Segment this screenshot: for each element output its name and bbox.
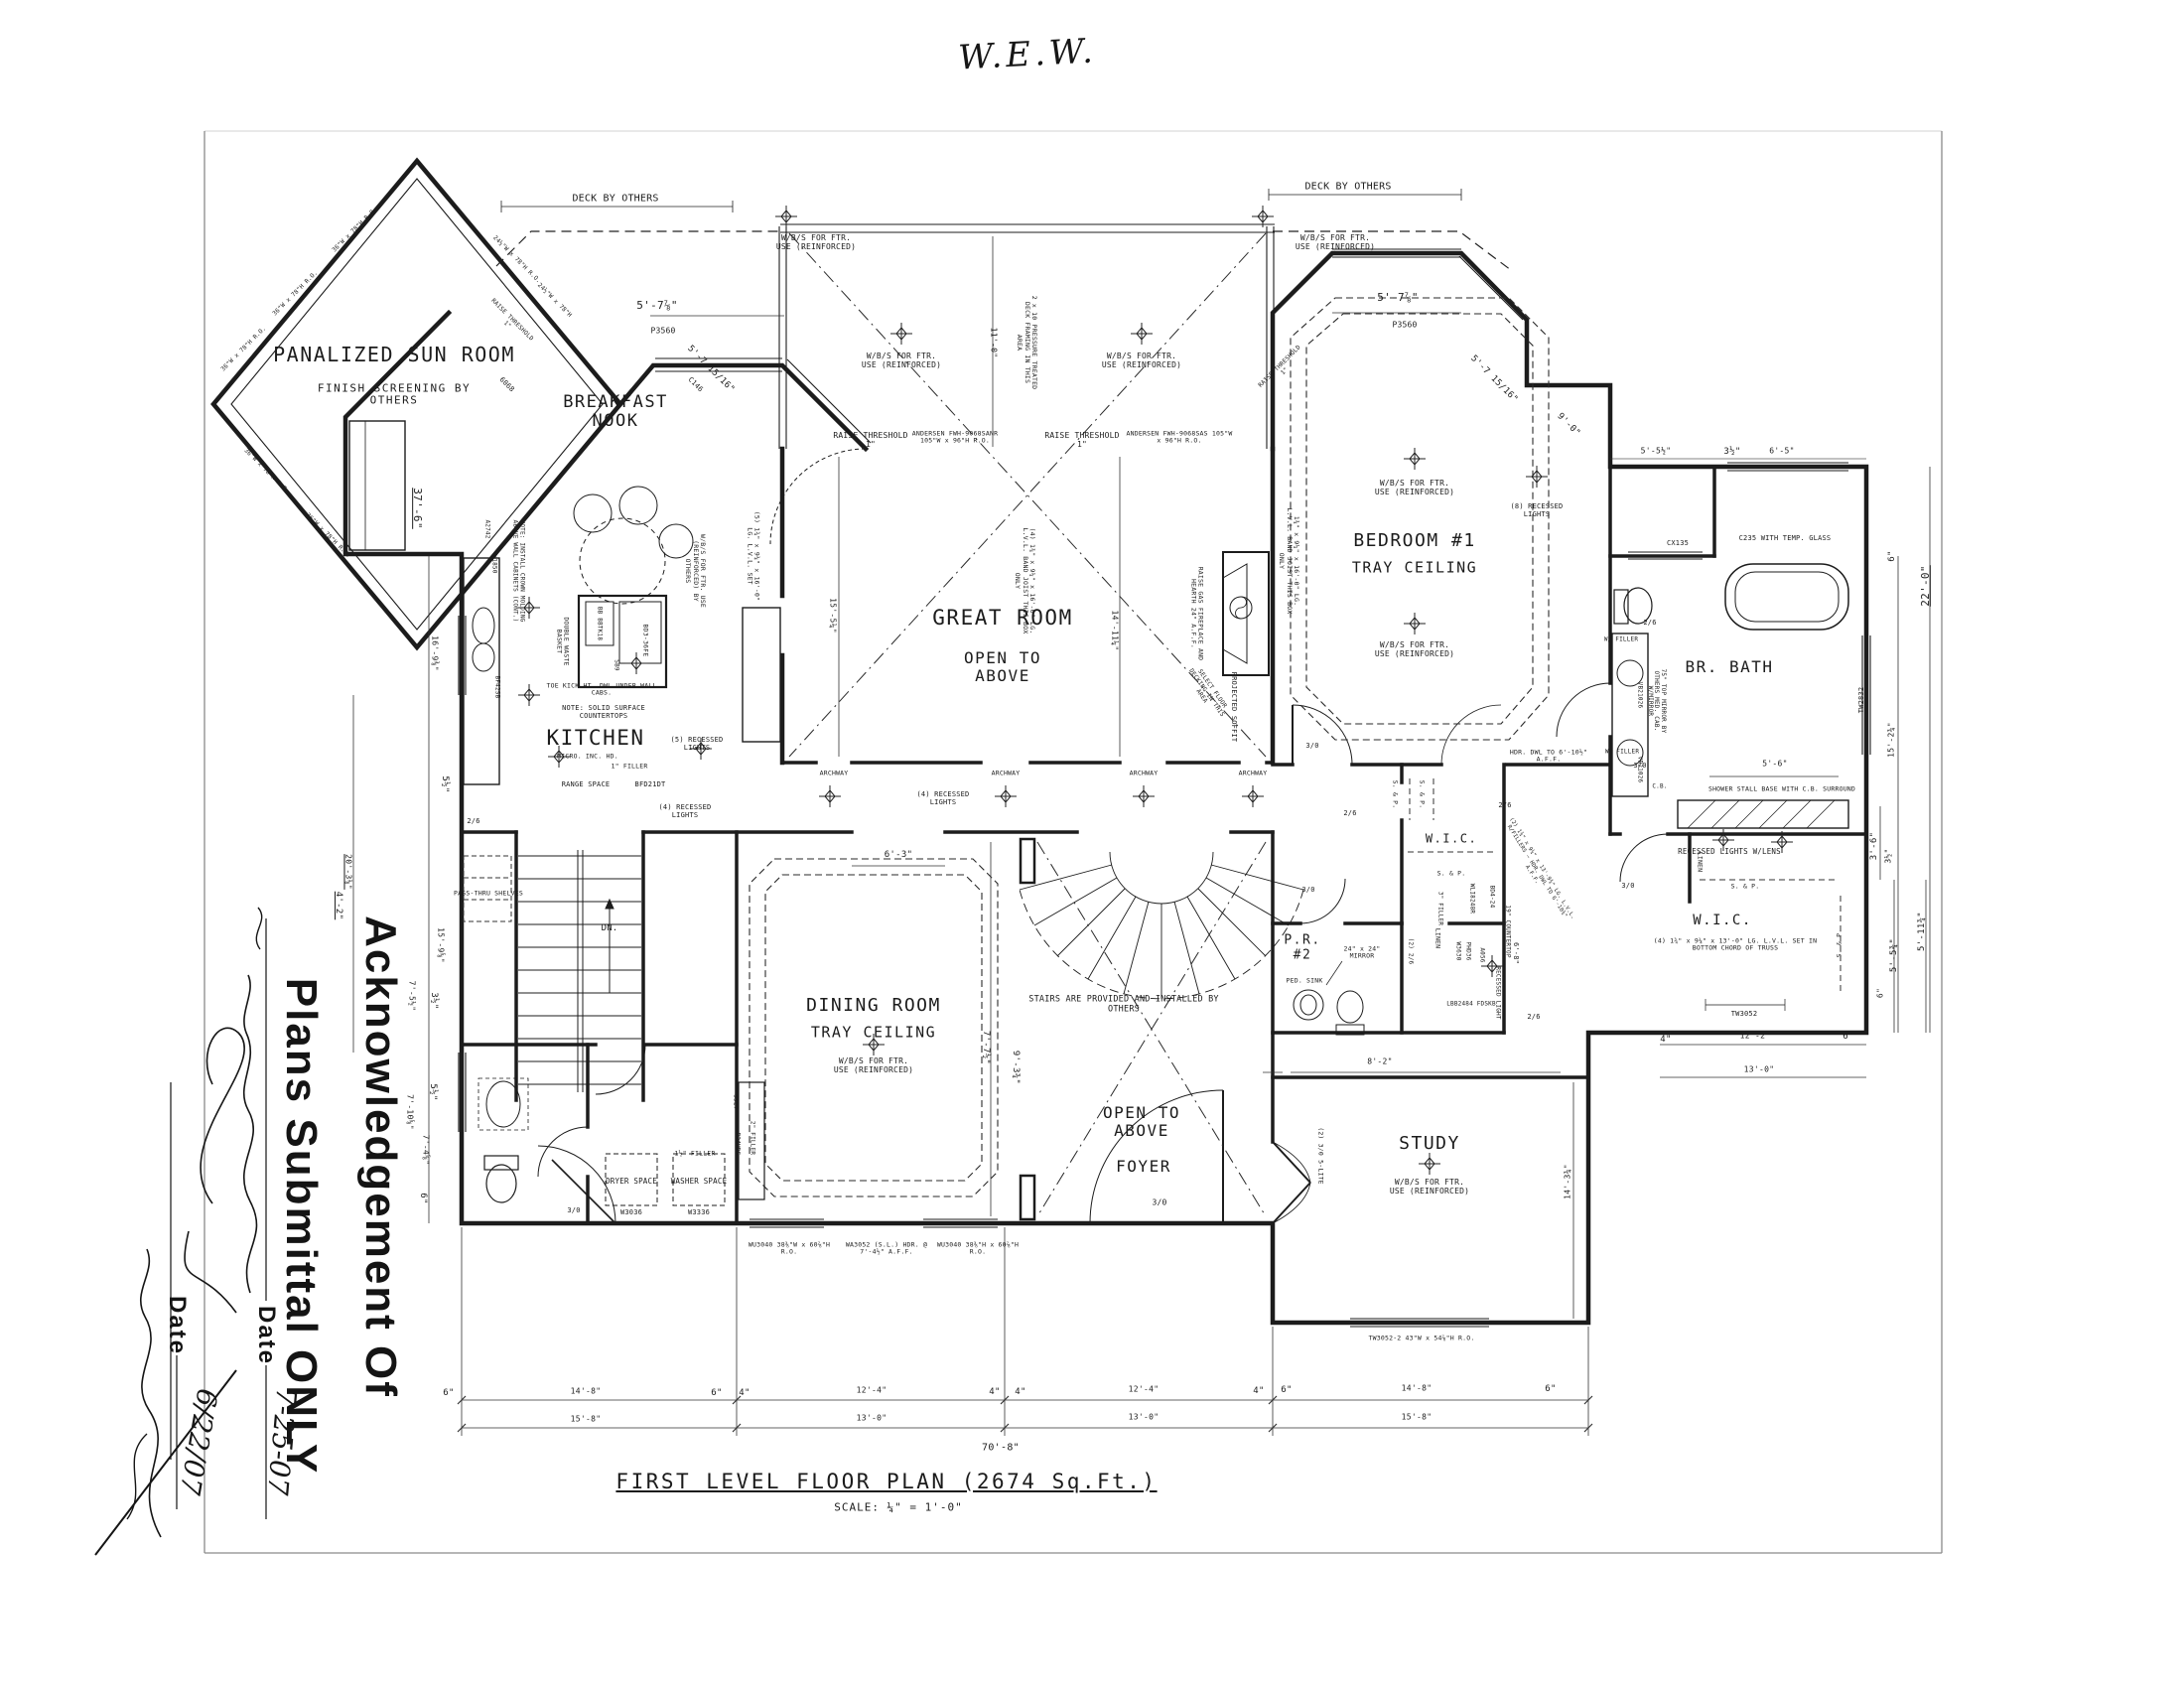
- room-great-room: GREAT ROOM: [932, 607, 1072, 631]
- annotation-label: 36"W x 78"H R.O.: [272, 270, 320, 318]
- dimension-label: 15'-8": [1402, 1414, 1433, 1423]
- annotation-label: 36"W x 78"H R.O.: [304, 512, 351, 560]
- annotation-label: 3/0: [1621, 883, 1634, 891]
- annotation-label: 2" FILLER: [749, 1121, 755, 1155]
- annotation-label: WU3040 38⅜"H x 60⅞"H R.O.: [931, 1242, 1025, 1257]
- annotation-label: BB BBTK18: [596, 607, 603, 640]
- room-bedroom-1: BEDROOM #1: [1353, 531, 1475, 551]
- annotation-label: 6'-8": [1511, 942, 1519, 964]
- annotation-label: MICRO. INC. HD.: [557, 753, 618, 760]
- annotation-label: C.B.: [1652, 784, 1667, 791]
- dimension-label: 4": [989, 1387, 1000, 1397]
- annotation-label: W/B/S FOR FTR. USE (REINFORCED): [1294, 234, 1378, 252]
- annotation-label: ANDERSEN FWH-9068SANR 105"W x 96"H R.O.: [900, 431, 1010, 446]
- note-stairs: STAIRS ARE PROVIDED AND INSTALLED BY OTH…: [1024, 995, 1223, 1014]
- dimension-label: 13'-0": [1744, 1066, 1775, 1075]
- annotation-label: HDR. DWL TO 6'-10½" A.F.F.: [1497, 750, 1601, 765]
- stamp-line-1: Acknowledgement Of: [355, 915, 405, 1398]
- annotation-label: TW3052-2 43"W x 54⅞"H R.O.: [1352, 1335, 1491, 1341]
- dimension-label: 12'-4": [857, 1387, 887, 1396]
- annotation-label: LINEN: [1433, 928, 1440, 949]
- annotation-label: RANGE SPACE: [560, 781, 612, 789]
- dimension-label: 5'-11¾": [1917, 912, 1927, 951]
- room-powder-2: P.R. #2: [1277, 933, 1328, 962]
- dimension-label: 7'-5½": [407, 981, 416, 1012]
- room-dining: DINING ROOM: [806, 996, 941, 1016]
- room-wic-master: W.I.C.: [1693, 914, 1752, 929]
- dimension-label: 22'-0": [1920, 565, 1932, 607]
- annotation-label: WASHER SPACE: [669, 1178, 729, 1186]
- annotation-label: 24½"W x 78"H R.O.: [491, 235, 542, 286]
- dimension-label: 12'-4": [1129, 1386, 1160, 1395]
- annotation-label: BF42SB: [493, 676, 500, 699]
- annotation-label: W3630: [1454, 941, 1461, 960]
- annotation-label: W/B/S FOR FTR. USE (REINFORCED): [1373, 480, 1457, 497]
- annotation-label: P3560: [650, 328, 675, 337]
- annotation-label: RECESSED LIGHTS W/LENS: [1673, 848, 1787, 856]
- dimension-label: 6": [1887, 550, 1897, 561]
- note-sun-room-screening: FINISH SCREENING BY OTHERS: [315, 383, 474, 408]
- annotation-label: 1½" FILLER: [674, 1150, 715, 1157]
- dimension-label: 5'-7 15/16": [1468, 353, 1520, 405]
- annotation-label: 2/6: [1527, 1014, 1540, 1022]
- dimension-label: 13'-0": [857, 1415, 887, 1424]
- annotation-label: W/B/S FOR FTR. USE (REINFORCED): [832, 1057, 916, 1075]
- annotation-label: NOTE: INSTALL CROWN MOLDING ABOVE WALL C…: [511, 516, 524, 626]
- dimension-label: 4'-2": [334, 892, 343, 920]
- annotation-label: S. & P.: [1418, 780, 1425, 809]
- annotation-label: W/B/S FOR FTR. USE (REINFORCED): [1373, 641, 1457, 659]
- annotation-label: DRYER SPACE: [603, 1178, 660, 1186]
- note-deck-left: DECK BY OTHERS: [572, 193, 658, 204]
- annotation-label: RAISE THRESHOLD 1": [1037, 432, 1127, 450]
- annotation-layer: PANALIZED SUN ROOMFINISH SCREENING BY OT…: [0, 0, 2184, 1689]
- dimension-label: 6": [1877, 988, 1886, 998]
- annotation-label: 5527: [732, 1094, 739, 1109]
- dimension-label: 8'-2": [1367, 1058, 1393, 1067]
- room-study: STUDY: [1399, 1134, 1460, 1154]
- annotation-label: 36"W x 78"H R.O.: [242, 448, 290, 495]
- dimension-label: 14'-11¼": [1110, 611, 1119, 651]
- annotation-label: VB21026: [1636, 682, 1643, 709]
- note-great-room-open: OPEN TO ABOVE: [938, 649, 1067, 685]
- annotation-label: 2/6: [1498, 802, 1511, 810]
- dimension-label: 3½": [1885, 848, 1894, 863]
- dimension-label: 15'-9⅝": [436, 927, 445, 963]
- dimension-label: 6'-3": [885, 850, 913, 860]
- annotation-label: B24HDS: [734, 1133, 741, 1156]
- dimension-label: 5'-7⅞": [636, 300, 678, 312]
- annotation-label: W3036: [620, 1209, 642, 1217]
- annotation-label: NOTE: SOLID SURFACE COUNTERTOPS: [542, 705, 666, 721]
- annotation-label: (4) RECESSED LIGHTS: [645, 804, 725, 820]
- annotation-label: W/B/S FOR FTR. USE (REINFORCED) BY OTHER…: [684, 531, 706, 611]
- stamp-date-label-2: Date: [163, 1296, 191, 1355]
- dimension-label: 6": [1281, 1385, 1292, 1395]
- dimension-label: 4": [1253, 1386, 1264, 1396]
- annotation-label: W/ FILLER: [1605, 750, 1639, 757]
- annotation-label: ANDERSEN FWH-9068SAS 105"W x 96"H R.O.: [1125, 431, 1234, 446]
- annotation-label: (4) RECESSED LIGHTS: [903, 791, 983, 807]
- room-br-bath: BR. BATH: [1685, 658, 1774, 676]
- annotation-label: SB9: [613, 659, 619, 670]
- dimension-label: 5½": [440, 775, 450, 792]
- dimension-label: 4": [1015, 1387, 1025, 1397]
- annotation-label: 2/6: [467, 818, 479, 826]
- dimension-label: 6": [418, 1193, 428, 1203]
- dimension-label: 15'-2¾": [1888, 722, 1897, 758]
- dimension-label: 6": [1545, 1384, 1556, 1394]
- annotation-label: W1850: [490, 554, 497, 573]
- annotation-label: W/B/S FOR FTR. USE (REINFORCED): [860, 352, 944, 370]
- dimension-label: 14'-3¾": [1565, 1164, 1573, 1199]
- handwritten-initials: W.E.W.: [957, 31, 1097, 77]
- annotation-label: DOUBLE WASTE BASKET: [555, 612, 570, 671]
- dimension-label: 15'-5¼": [828, 598, 837, 633]
- dimension-label: 70'-8": [982, 1442, 1020, 1453]
- dimension-label: 5'-5½": [1641, 448, 1672, 457]
- annotation-label: S. & P.: [1836, 929, 1843, 958]
- annotation-label: 36"W x 78"H R.O.: [332, 207, 379, 254]
- annotation-label: 2/6: [1343, 810, 1356, 818]
- stamp-date-label-1: Date: [252, 1306, 280, 1365]
- annotation-label: 6068: [497, 376, 515, 394]
- annotation-label: TW3052: [1731, 1011, 1758, 1019]
- annotation-label: CX135: [1667, 540, 1689, 548]
- dimension-label: 11'-0": [989, 328, 998, 358]
- floor-plan-sheet: PANALIZED SUN ROOMFINISH SCREENING BY OT…: [0, 0, 2184, 1689]
- dimension-label: 4": [1660, 1035, 1671, 1045]
- dimension-label: 6": [1843, 1032, 1853, 1042]
- annotation-label: ARCHWAY: [820, 770, 849, 776]
- annotation-label: DN.: [602, 923, 618, 933]
- dimension-label: 5'-6": [1762, 761, 1788, 770]
- annotation-label: ARCHWAY: [1130, 770, 1159, 776]
- dimension-label: 4": [739, 1388, 750, 1398]
- annotation-label: (4) 1¾" x 9¼" x 13'-0" LG. L.V.L. SET IN…: [1641, 938, 1830, 953]
- annotation-label: ARCHWAY: [1239, 770, 1268, 776]
- dimension-label: 5'-7⅞": [1377, 292, 1419, 304]
- annotation-label: PHD36: [1464, 941, 1471, 960]
- annotation-label: PROJECTED SOFFIT: [1229, 672, 1237, 743]
- annotation-label: C146: [686, 376, 704, 394]
- annotation-label: 2 x 10 PRESSURE TREATED DECK FRAMING IN …: [1016, 296, 1037, 390]
- dimension-label: 5'-5¾": [1889, 938, 1899, 972]
- annotation-label: PASS-THRU SHELVES: [450, 890, 527, 897]
- annotation-label: 3/0: [1301, 887, 1314, 895]
- annotation-label: (5) RECESSED LIGHTS: [657, 737, 737, 753]
- annotation-label: (5) 1¾" x 9¼" x 16'-0" LG. L.V.L. SET: [746, 506, 760, 606]
- dimension-label: 3'-6": [1869, 832, 1879, 861]
- annotation-label: W/ FILLER: [1604, 637, 1638, 644]
- annotation-label: S. & P.: [1437, 870, 1466, 877]
- room-wic-hall: W.I.C.: [1426, 832, 1477, 845]
- note-deck-right: DECK BY OTHERS: [1304, 181, 1391, 192]
- annotation-label: BFD21DT: [635, 781, 666, 789]
- annotation-label: P3560: [1392, 322, 1417, 331]
- plan-title: FIRST LEVEL FLOOR PLAN (2674 Sq.Ft.): [615, 1470, 1157, 1493]
- dimension-label: 7'-7½": [981, 1031, 991, 1064]
- annotation-label: WA3052 (S.L.) HDR. @ 7'-4½" A.F.F.: [840, 1242, 934, 1257]
- annotation-label: (8) RECESSED LIGHTS: [1497, 503, 1576, 519]
- dimension-label: 15'-8": [571, 1416, 602, 1425]
- annotation-label: LBB2484 FDSKB: [1441, 1002, 1501, 1009]
- annotation-label: 75" TOP MIRROR BY OTHERS MED. CAB. W/MIR…: [1646, 659, 1666, 744]
- annotation-label: LINEN: [1696, 852, 1703, 873]
- dimension-label: 14'-8": [1402, 1385, 1433, 1394]
- dimension-label: 7'-10⅝": [405, 1094, 414, 1130]
- annotation-label: W/B/S FOR FTR. USE (REINFORCED): [774, 234, 859, 252]
- annotation-label: A056: [1478, 947, 1485, 962]
- annotation-label: W3336: [688, 1209, 710, 1217]
- annotation-label: A2742: [483, 519, 490, 538]
- room-breakfast-nook: BREAKFAST NOOK: [541, 393, 690, 431]
- annotation-label: RAISE THRESHOLD 1": [482, 296, 535, 349]
- annotation-label: C235 WITH TEMP. GLASS: [1738, 535, 1833, 543]
- annotation-label: 19" COUNTERTOP: [1504, 905, 1511, 957]
- annotation-label: (2) 3/0 5-LITE: [1316, 1127, 1323, 1185]
- annotation-label: VB21026: [1636, 757, 1643, 783]
- annotation-label: 24" x 24" MIRROR: [1331, 946, 1393, 961]
- annotation-label: PED. SINK: [1281, 977, 1328, 984]
- annotation-label: 3/0: [1305, 743, 1318, 751]
- annotation-label: W/B/S FOR FTR. USE (REINFORCED): [1100, 352, 1184, 370]
- note-bedroom-tray: TRAY CEILING: [1352, 560, 1477, 577]
- room-kitchen: KITCHEN: [546, 727, 644, 751]
- annotation-label: RAISE GAS FIREPLACE AND HEARTH 24" A.F.F…: [1189, 564, 1204, 663]
- dimension-label: 37'-6": [411, 488, 423, 529]
- annotation-label: BD4-24: [1488, 886, 1495, 909]
- dimension-label: 20'-3⅛": [343, 854, 352, 890]
- annotation-label: (4) 1¾" x 9¼" x 16'-0" LG. L.V.L. BAND J…: [1014, 524, 1035, 638]
- dimension-label: 9'-3¾": [1011, 1051, 1021, 1084]
- annotation-label: TOE KICK HT. DWL UNDER WALL CABS.: [535, 683, 669, 698]
- annotation-label: 3" FILLER: [1436, 892, 1443, 925]
- dimension-label: 3½": [1723, 447, 1740, 457]
- dimension-label: 9'-0": [1555, 411, 1581, 438]
- annotation-label: ARCHWAY: [992, 770, 1021, 776]
- dimension-label: 14'-8": [571, 1388, 602, 1397]
- annotation-label: SHOWER STALL BASE WITH C.B. SURROUND: [1707, 785, 1856, 792]
- dimension-label: 6'-5": [1769, 448, 1795, 457]
- dimension-label: 13'-0": [1129, 1414, 1160, 1423]
- annotation-label: S. & P.: [1731, 883, 1760, 890]
- annotation-label: S. & P.: [1391, 780, 1398, 809]
- room-sun-room: PANALIZED SUN ROOM: [273, 344, 515, 365]
- annotation-label: W/B/S FOR FTR. USE (REINFORCED): [1388, 1179, 1472, 1196]
- annotation-label: (2) 2/6: [1407, 938, 1414, 965]
- plan-scale: SCALE: ¼" = 1'-0": [834, 1501, 963, 1514]
- annotation-label: RAISE THRESHOLD 1": [1256, 343, 1308, 395]
- annotation-label: WLI8248R: [1468, 884, 1475, 915]
- note-dining-tray: TRAY CEILING: [811, 1025, 936, 1042]
- note-foyer-open: OPEN TO ABOVE: [1077, 1104, 1206, 1140]
- annotation-label: 36"W x 78"H R.O.: [220, 326, 268, 373]
- room-foyer: FOYER: [1116, 1158, 1171, 1176]
- annotation-label: 1" FILLER: [611, 763, 647, 770]
- dimension-label: 3½": [429, 992, 439, 1009]
- annotation-label: BD3-36FE: [641, 625, 648, 657]
- dimension-label: 5½": [428, 1083, 438, 1100]
- annotation-label: 3/0: [567, 1207, 580, 1215]
- dimension-label: 7'-4⅝": [421, 1135, 430, 1166]
- annotation-label: 1¾" x 9¼" x 16'-0" LG. L.V.L. BAND JOIST…: [1278, 506, 1299, 616]
- dimension-label: 6": [443, 1388, 454, 1398]
- annotation-label: 2/6: [1643, 620, 1656, 628]
- annotation-label: WU3040 38⅜"W x 60⅞"H R.O.: [743, 1242, 837, 1257]
- dimension-label: 16'-9⅜": [430, 635, 439, 671]
- annotation-label: SELECT FLOOR DECKING IN THIS AREA: [1178, 659, 1235, 728]
- annotation-label: TW2832: [1858, 687, 1866, 714]
- dimension-label: 12'-2": [1740, 1033, 1771, 1042]
- annotation-label: RECESSED LIGHT: [1494, 966, 1501, 1019]
- annotation-label: 3/0: [1152, 1199, 1166, 1208]
- annotation-label: 24½"W x 78"H: [535, 282, 572, 319]
- dimension-label: 6": [711, 1388, 722, 1398]
